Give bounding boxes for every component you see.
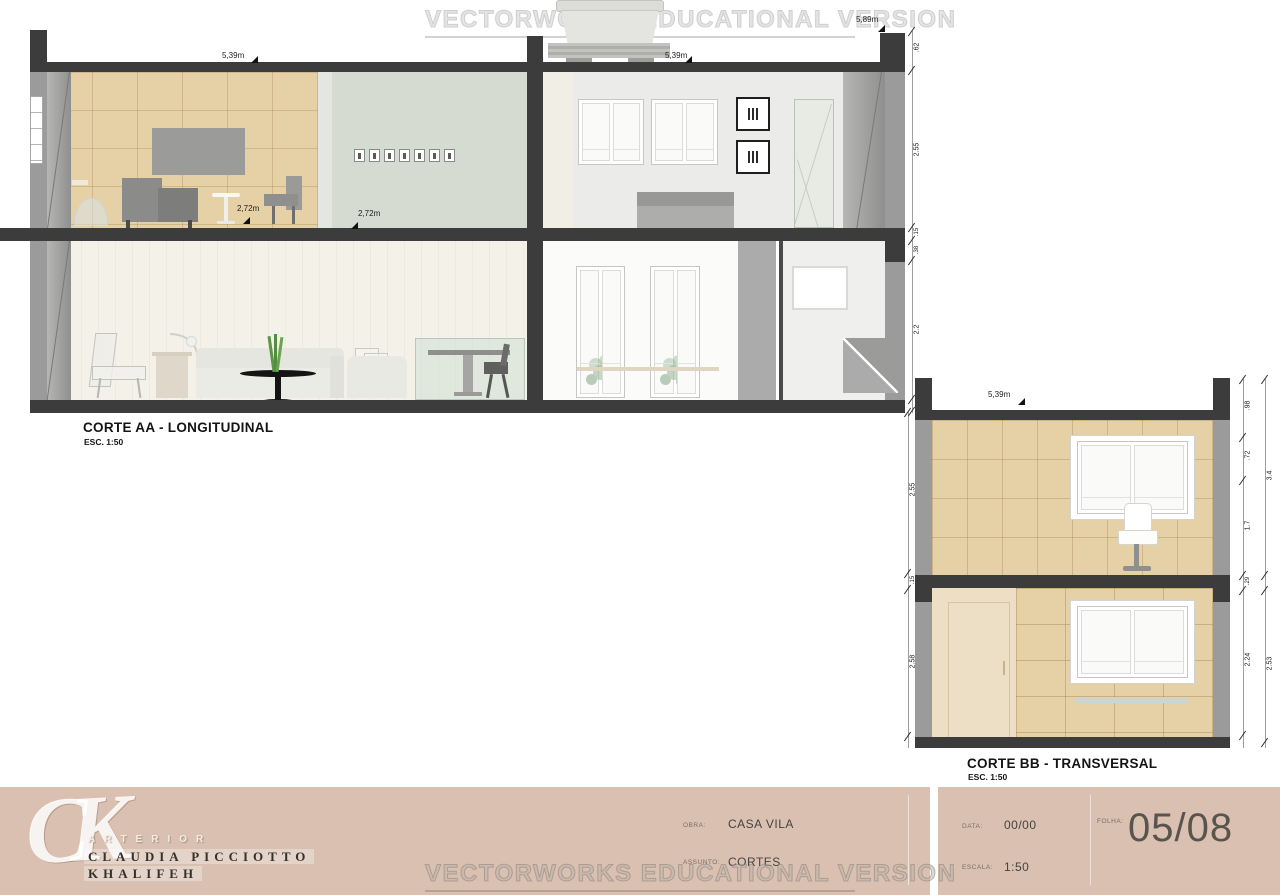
escala-value: 1:50 [1004, 860, 1029, 874]
aa-bed-body [637, 206, 734, 228]
data-value: 00/00 [1004, 818, 1037, 832]
aa-mid-slab [0, 228, 905, 241]
mini-frame [384, 149, 395, 162]
bb-rdim-34: 3.4 [1267, 461, 1274, 491]
door-pane [677, 270, 697, 394]
aa-left-wall-lower [30, 241, 47, 400]
bb-door-leaf [948, 602, 1010, 737]
door-pane [602, 270, 621, 394]
aa-mid-slab-step [885, 241, 905, 262]
escala-label: ESCALA: [962, 864, 993, 871]
aa-patio-wall [543, 241, 738, 400]
mini-frame [444, 149, 455, 162]
mini-frame [399, 149, 410, 162]
bb-chair-seat [1118, 530, 1158, 545]
aa-left-window [30, 96, 43, 164]
folha-label: FOLHA: [1097, 818, 1123, 825]
titleblock-divider [1090, 795, 1091, 885]
mini-frame [354, 149, 365, 162]
aa-deskchair-leg [292, 206, 295, 224]
window-pane [613, 103, 641, 161]
curtain-fold-line [46, 72, 70, 233]
bb-section-scale: ESC. 1:50 [968, 772, 1007, 782]
aa-armchair-back [122, 178, 162, 222]
aa-gallery-light-strip [318, 72, 332, 228]
bb-dim-539: 5,39m [988, 390, 1010, 399]
window-pane [1081, 610, 1131, 674]
aa-armchair-seat [158, 188, 198, 222]
bb-section-title: CORTE BB - TRANSVERSAL [967, 756, 1157, 771]
aa-bed-window-2 [651, 99, 718, 165]
watermark-bottom: VECTORWORKS EDUCATIONAL VERSION [425, 860, 855, 892]
aa-dining-table-base [454, 392, 482, 396]
aa-stair-room-window [792, 266, 848, 310]
window-pane [655, 103, 683, 161]
aa-rdim-255: 2.55 [914, 135, 921, 165]
bb-rdim-17: 1.7 [1245, 511, 1252, 541]
aa-dim-539-mid: 5,39m [665, 51, 687, 60]
author-name-line1: CLAUDIA PICCIOTTO [84, 849, 314, 864]
aa-sofa-arm [330, 356, 344, 398]
aa-dim-272-left: 2,72m [237, 204, 259, 213]
bb-ldim-258: 2.58 [910, 647, 917, 677]
door-pane [654, 270, 674, 394]
aa-dim-539-left: 5,39m [222, 51, 244, 60]
aa-room-tv-curtain [47, 72, 71, 228]
aa-glass-door-2 [650, 266, 700, 398]
aa-dining-table-leg [463, 355, 473, 393]
door-handle [1003, 661, 1005, 675]
aa-tv-screen [152, 128, 245, 175]
aa-section-title: CORTE AA - LONGITUDINAL [83, 420, 273, 435]
aa-picture-frame-1 [736, 97, 770, 131]
bb-left-wall-upper [915, 420, 932, 575]
aa-right-wall-upper [885, 72, 905, 228]
bb-left-dim-line [908, 412, 909, 748]
aa-armchair-leg [188, 220, 192, 228]
drawing-sheet: VECTORWORKS EDUCATIONAL VERSION [0, 0, 1280, 895]
aa-glass-door-1 [576, 266, 625, 398]
bb-window-lower [1077, 606, 1188, 678]
curtain-fold-line [46, 241, 70, 406]
aa-dim-589: 5,89m [856, 15, 878, 24]
aa-tulip-table-stem [275, 376, 281, 401]
bb-rdim-253: 2.53 [1267, 649, 1274, 679]
window-pane [582, 103, 610, 161]
mini-frame [369, 149, 380, 162]
bb-bottom-slab [915, 737, 1230, 748]
aa-stair-flight [843, 338, 898, 393]
aa-bed-wardrobe [843, 72, 885, 228]
aa-rdim-62: .62 [914, 33, 921, 63]
aa-pedestal-stem [224, 197, 228, 222]
door-pane [580, 270, 599, 394]
aa-lamp-shade [186, 336, 197, 347]
plant [586, 374, 597, 385]
bb-shelf-strip [1075, 697, 1188, 703]
bb-right-wall-upper [1213, 420, 1230, 575]
author-name-line2: KHALIFEH [84, 866, 202, 881]
aa-grey-pier [738, 241, 776, 400]
bb-rdim-72: .72 [1245, 441, 1252, 471]
dim-arrow [251, 56, 258, 63]
bb-right-outer-dim-line [1265, 379, 1266, 748]
aa-bed-cream-strip [543, 72, 573, 228]
window-pane [1134, 610, 1184, 674]
bb-ldim-255: 2.55 [910, 475, 917, 505]
curtain-fold-line [856, 72, 882, 232]
aa-picture-frame-2 [736, 140, 770, 174]
bb-left-wall-lower [915, 602, 932, 737]
aa-dim-272-mid: 2,72m [358, 209, 380, 218]
bb-ldim-15: .15 [910, 565, 916, 595]
water-tank-body [561, 10, 659, 45]
obra-value: CASA VILA [728, 817, 794, 831]
aa-picture-row [354, 149, 455, 162]
aa-deskchair-seat [264, 194, 298, 206]
aa-right-dim-line [912, 31, 913, 413]
aa-rdim-22: 2.2 [914, 315, 921, 345]
bb-roof-slab [915, 410, 1230, 420]
folha-value: 05/08 [1128, 806, 1233, 851]
aa-tv-ledge [72, 180, 88, 185]
bb-mid-slab-step-right [1213, 588, 1230, 602]
bb-right-wall-lower [1213, 602, 1230, 737]
aa-mid-wall [527, 36, 543, 413]
dim-arrow [1018, 398, 1025, 405]
aa-sill-strip [577, 367, 719, 371]
mini-frame [429, 149, 440, 162]
aa-section-scale: ESC. 1:50 [84, 437, 123, 447]
bb-parapet-right [1213, 378, 1230, 410]
bb-parapet-left [915, 378, 932, 410]
aa-bed-headboard [637, 192, 734, 206]
aa-pedestal-base [217, 221, 235, 224]
window-pane [1134, 445, 1184, 510]
bb-rdim-224: 2.24 [1245, 645, 1252, 675]
window-pane [686, 103, 714, 161]
bb-chair-stem [1134, 544, 1139, 567]
obra-label: OBRA: [683, 822, 706, 829]
plant [660, 374, 671, 385]
aa-bed-window-1 [578, 99, 644, 165]
aa-living-curtain [47, 241, 71, 400]
aa-rdim-38: .38 [914, 235, 920, 265]
window-pane [1081, 445, 1131, 510]
bb-chair-base [1123, 566, 1151, 571]
data-label: DATA: [962, 823, 983, 830]
aa-deskchair-leg [272, 206, 275, 224]
aa-chaise [347, 356, 407, 398]
bb-rdim-98: .98 [1245, 391, 1252, 421]
bb-mid-slab [915, 575, 1230, 588]
mini-frame [414, 149, 425, 162]
water-tank-base [548, 43, 670, 58]
bb-rdim-29: .29 [1245, 566, 1251, 596]
bb-mid-slab-step-left [915, 588, 932, 602]
aa-bottom-slab [30, 400, 905, 413]
aa-bedroom-door [794, 99, 834, 228]
aa-roof-slab [30, 62, 905, 72]
aa-sidetable-body [156, 356, 188, 398]
aa-armchair-leg [126, 220, 130, 228]
brand-name: ARTERIOR [88, 834, 212, 845]
